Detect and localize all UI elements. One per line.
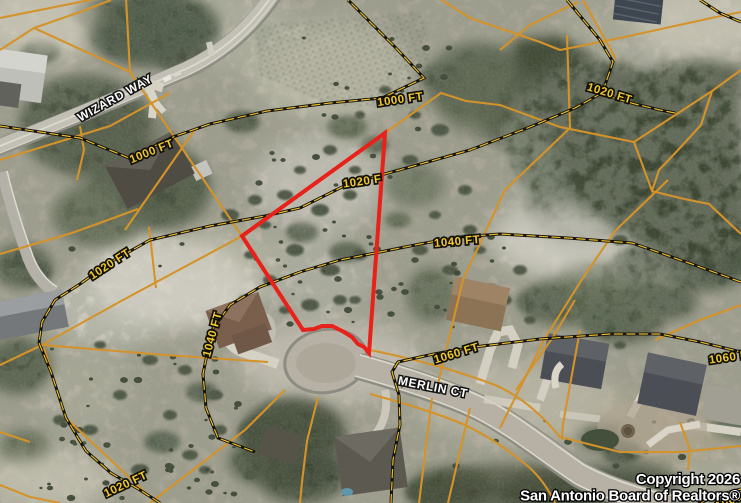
svg-text:Copyright 2026: Copyright 2026: [636, 471, 740, 488]
svg-text:San Antonio Board of Realtors®: San Antonio Board of Realtors®: [520, 488, 740, 503]
